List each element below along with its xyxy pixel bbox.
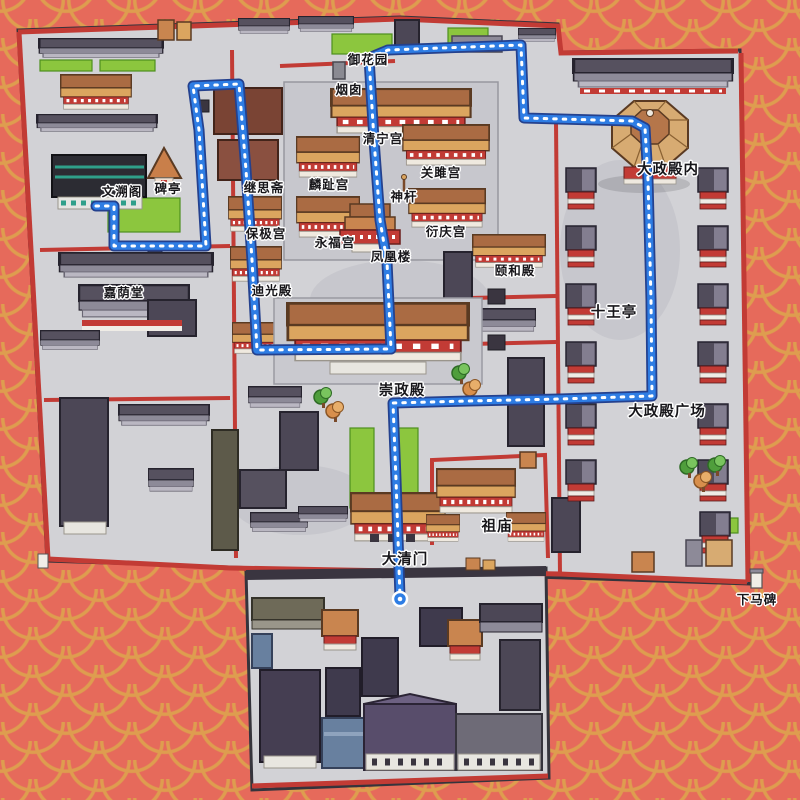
route-end-marker (393, 592, 407, 606)
map-label-baojigong: 保极宫 (246, 228, 287, 241)
palace-map: 御花园 烟囱 清宁宫 关雎宫 麟趾宫 神杆 衍庆宫 永福宫 凤凰楼 颐和殿 继思… (0, 0, 800, 800)
guanjugong-hall (403, 125, 489, 165)
linzhigong-hall (297, 137, 360, 177)
map-label-fenghuanglou: 凤凰楼 (371, 251, 412, 264)
map-illustration (0, 0, 800, 800)
map-label-jisizhai: 继思斋 (244, 182, 285, 195)
map-label-shengan: 神杆 (390, 191, 417, 204)
street-hall (364, 694, 456, 770)
map-label-yihedian: 颐和殿 (495, 265, 536, 278)
map-label-daqingmen: 大清门 (382, 553, 429, 568)
map-label-linzhigong: 麟趾宫 (309, 179, 350, 192)
map-label-guanjugong: 关雎宫 (421, 167, 462, 180)
street-pavilion (448, 620, 482, 660)
map-label-beiting: 碑亭 (154, 183, 181, 196)
map-label-yongfugong: 永福宫 (315, 237, 356, 250)
map-label-xiamabei: 下马碑 (737, 594, 778, 607)
map-label-zumiao: 祖庙 (482, 520, 513, 535)
map-label-dazhengdiannei: 大政殿内 (637, 163, 699, 178)
street-shops (456, 714, 542, 770)
map-label-yuhuayuan: 御花园 (348, 54, 389, 67)
chongzhengdian-hall (274, 298, 482, 384)
map-label-shiwangting: 十王亭 (591, 306, 638, 321)
chimney (333, 62, 345, 79)
street-pavilion (322, 610, 358, 650)
dismount-stele (750, 569, 763, 588)
map-label-wensuge: 文溯阁 (102, 186, 143, 199)
map-label-chongzhengdian: 崇政殿 (379, 384, 426, 399)
map-label-diguangdian: 迪光殿 (252, 285, 293, 298)
map-label-yanqinggong: 衍庆宫 (426, 226, 467, 239)
map-label-dazhengdianguangchang: 大政殿广场 (628, 405, 706, 420)
map-label-jiayintang: 嘉荫堂 (104, 287, 145, 300)
yanqinggong-hall (409, 189, 485, 227)
map-label-qingninggong: 清宁宫 (363, 133, 404, 146)
map-label-yancong: 烟囱 (335, 84, 362, 97)
